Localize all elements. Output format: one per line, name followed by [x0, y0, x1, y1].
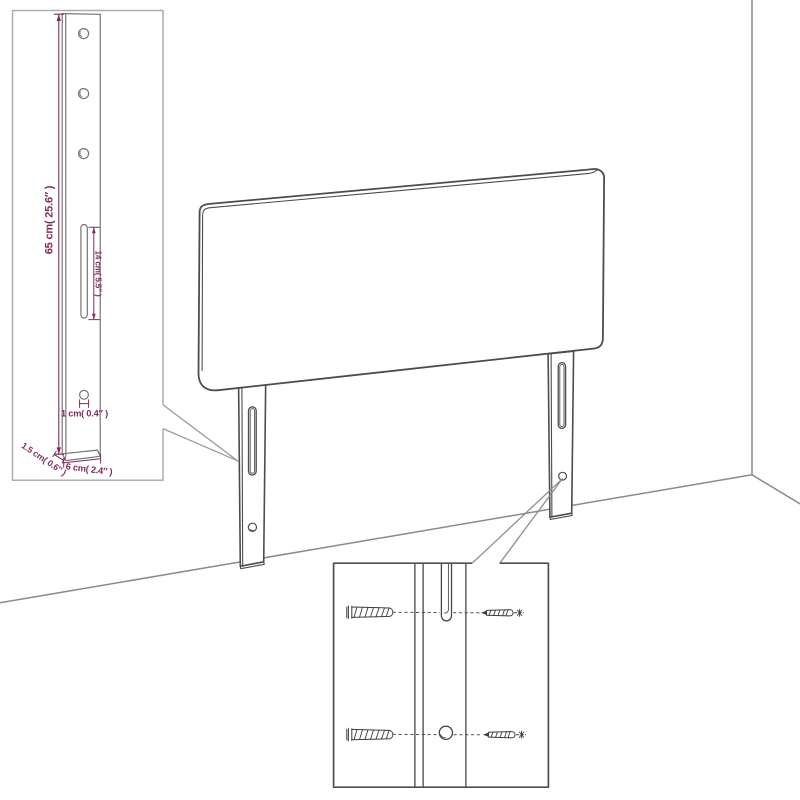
dimension-label-slot-length: 14 cm( 5.5″ ) — [93, 251, 102, 297]
leader-bottom-callout-right — [500, 479, 563, 563]
floor-line-right — [752, 475, 800, 504]
leader-bottom-callout-left — [472, 479, 562, 563]
right-leg-slot — [558, 363, 565, 429]
callout-leaders — [163, 405, 562, 563]
dimension-label-hole-diameter: 1 cm( 0.4″ ) — [61, 409, 108, 419]
dimension-label-leg-height: 65 cm( 25.6″ ) — [43, 185, 55, 254]
left-leg — [239, 382, 266, 569]
detail-leg-top-edge — [62, 14, 100, 15]
headboard-panel — [199, 169, 605, 390]
panel-left-edge-inner-line — [202, 215, 203, 371]
detail-box-top-left: 65 cm( 25.6″ ) 14 cm( 5.5″ ) 1 cm( 0.4″ … — [13, 11, 164, 481]
panel-outline — [199, 169, 605, 390]
right-leg — [548, 351, 574, 519]
diagram-svg: 65 cm( 25.6″ ) 14 cm( 5.5″ ) 1 cm( 0.4″ … — [0, 0, 800, 800]
detail-box-bottom — [334, 563, 549, 787]
headboard-assembly-diagram: 65 cm( 25.6″ ) 14 cm( 5.5″ ) 1 cm( 0.4″ … — [0, 0, 800, 800]
